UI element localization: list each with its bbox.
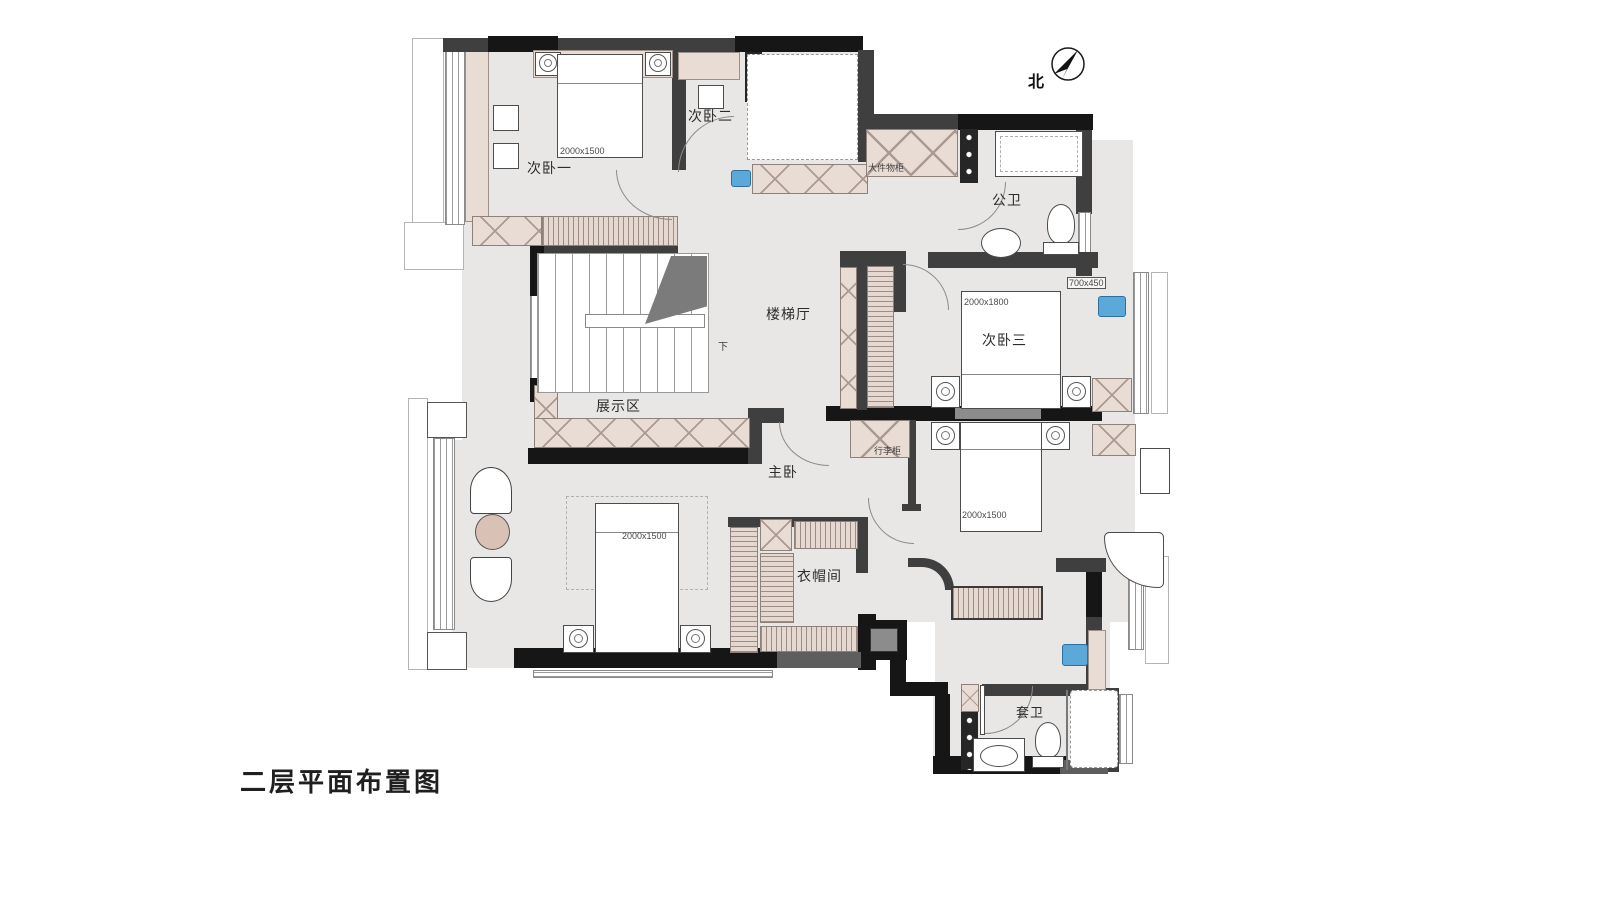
lamp-bedroom3-right — [1067, 382, 1086, 401]
stool-bedroom2 — [731, 170, 751, 187]
cabinet-ensuite-small — [961, 684, 979, 712]
roof-eave-right-bay — [1151, 272, 1168, 414]
sliding-door-bedroom3 — [955, 408, 1041, 419]
wall-top-black-2 — [735, 36, 863, 52]
label-cloakroom: 衣帽间 — [797, 566, 842, 586]
cabinet-bedroom1-bottom-slats — [542, 216, 678, 246]
wardrobe-cloakroom-corner — [760, 519, 792, 551]
bed-bedroom2 — [747, 54, 858, 160]
dim-bedroom1-bed: 2000x1500 — [560, 146, 605, 156]
wardrobe-cloakroom-top — [794, 521, 858, 549]
label-display-area: 展示区 — [596, 396, 641, 416]
window-suite-right — [1128, 578, 1144, 650]
label-bedroom3: 次卧三 — [982, 330, 1027, 350]
wardrobe-cloakroom-left — [730, 527, 758, 653]
shelf-box-bedroom1-b — [493, 143, 519, 169]
sink-ensuite-basin — [980, 745, 1018, 767]
window-bedroom1-left — [445, 50, 465, 225]
column-master-left-top — [427, 402, 467, 438]
compass-north-label: 北 — [1028, 68, 1044, 92]
dresser-publicbath — [995, 131, 1083, 177]
wall-display-bottom — [528, 448, 762, 464]
cabinet-display-long — [534, 418, 750, 448]
lamp-suite-left — [936, 426, 955, 445]
wall-wardrobe-mid — [857, 264, 867, 410]
dim-bedroom3-cabinet: 700x450 — [1067, 277, 1106, 289]
cabinet-ensuite-strip — [1088, 630, 1106, 690]
label-luggage-cabinet: 行李柜 — [874, 444, 901, 457]
column-dots-publicbath — [960, 129, 978, 183]
wall-suite-tub-top — [1056, 558, 1106, 572]
roof-eave-master-left — [408, 398, 428, 670]
wardrobe-cloakroom-mid — [760, 553, 794, 623]
shelf-box-bedroom1-a — [493, 105, 519, 131]
appliance-gray-box — [870, 628, 898, 652]
column-master-left-bottom — [427, 632, 467, 670]
armchair-master-bottom — [470, 557, 512, 602]
label-bedroom2: 次卧二 — [688, 106, 733, 126]
bed-bedroom1-pillow-line — [558, 83, 642, 84]
bed-bedroom3 — [961, 291, 1061, 409]
wall-master-door-left — [748, 408, 784, 423]
wardrobe-stairhall-x — [840, 267, 857, 409]
side-table-master — [475, 514, 510, 550]
toilet-publicbath-tank — [1043, 242, 1079, 255]
bed-bedroom3-pillow-line — [962, 374, 1060, 375]
label-master-bedroom: 主卧 — [768, 462, 798, 482]
armchair-master-top — [470, 467, 512, 514]
roof-eave-left-corner — [404, 222, 464, 270]
label-large-storage: 大件物柜 — [868, 161, 904, 174]
dim-bedroom3-bed: 2000x1800 — [964, 297, 1009, 307]
wall-wardrobe-cap — [840, 251, 906, 267]
window-master-left — [433, 438, 455, 630]
shower-ensuite — [1070, 690, 1118, 768]
label-public-bath: 公卫 — [992, 190, 1022, 210]
label-ensuite-bath: 套卫 — [1016, 702, 1044, 721]
window-sill-master-bottom — [533, 670, 773, 678]
lamp-suite-right — [1046, 426, 1065, 445]
bed-bedroom1 — [557, 54, 643, 158]
stool-bedroom3 — [1098, 296, 1126, 317]
ac-box-right — [1140, 448, 1170, 494]
wall-tub-column — [1086, 565, 1102, 620]
lamp-bedroom1-left — [539, 54, 557, 72]
wall-cloakroom-bottom-gray — [777, 652, 861, 668]
dresser-publicbath-counter — [1000, 136, 1078, 172]
cabinet-bedroom3-right-1 — [1092, 378, 1132, 412]
lamp-bedroom3-left — [936, 382, 955, 401]
bed-master — [595, 503, 679, 653]
cabinet-bedroom2-band — [678, 52, 740, 80]
stair-handrail — [585, 314, 705, 328]
dim-suite-bed: 2000x1500 — [962, 510, 1007, 520]
bed-suite-pillow-line — [961, 449, 1041, 450]
label-bedroom1: 次卧一 — [527, 158, 572, 178]
page-title: 二层平面布置图 — [240, 762, 443, 799]
cabinet-suite-right — [1092, 424, 1136, 456]
label-stairs-down: 下 — [718, 338, 728, 353]
dim-master-bed: 2000x1500 — [622, 531, 667, 541]
window-ensuite-right — [1119, 694, 1133, 764]
wall-publicbath-top-black — [958, 114, 1093, 130]
toilet-ensuite-base — [1032, 756, 1064, 768]
cabinet-bedroom2-bottom — [752, 164, 868, 194]
shower-divider-line — [1066, 690, 1068, 770]
toilet-publicbath-bowl — [1047, 204, 1075, 244]
wardrobe-cloakroom-bottom — [760, 626, 858, 652]
lamp-master-left — [569, 629, 588, 648]
lamp-master-right — [686, 629, 705, 648]
cabinet-bedroom1-window-strip — [465, 50, 489, 222]
floor-plan: 次卧一 次卧二 次卧三 公卫 楼梯厅 展示区 主卧 衣帽间 套卫 大件物柜 行李… — [0, 0, 1600, 899]
lamp-bedroom1-right — [649, 54, 667, 72]
compass-icon — [1046, 44, 1090, 86]
stool-suite — [1062, 644, 1088, 666]
toilet-ensuite-bowl — [1035, 722, 1061, 758]
cabinet-bedroom1-bottom-x — [472, 216, 542, 246]
window-bedroom3-right — [1133, 272, 1149, 414]
label-stair-hall: 楼梯厅 — [766, 304, 811, 324]
bench-suite — [951, 586, 1043, 620]
wardrobe-bedroom3-hanger — [867, 266, 894, 408]
sink-publicbath — [981, 228, 1021, 258]
